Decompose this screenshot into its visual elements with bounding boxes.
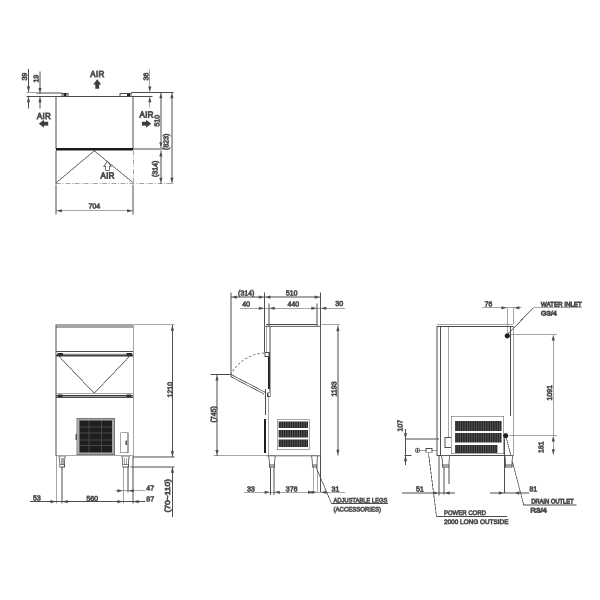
svg-text:(70~110): (70~110) bbox=[165, 479, 172, 513]
svg-text:1193: 1193 bbox=[332, 381, 339, 396]
svg-text:AIR: AIR bbox=[101, 172, 115, 181]
svg-text:(314): (314) bbox=[238, 290, 254, 297]
svg-text:33: 33 bbox=[247, 486, 255, 493]
svg-text:510: 510 bbox=[286, 290, 298, 297]
svg-text:31: 31 bbox=[332, 487, 340, 494]
svg-text:36: 36 bbox=[143, 73, 150, 81]
svg-text:(314): (314) bbox=[152, 161, 159, 177]
svg-text:AIR: AIR bbox=[37, 112, 51, 121]
svg-text:2000 LONG OUTSIDE: 2000 LONG OUTSIDE bbox=[444, 519, 509, 526]
svg-text:30: 30 bbox=[335, 301, 343, 308]
svg-text:510: 510 bbox=[155, 115, 162, 127]
svg-text:1210: 1210 bbox=[167, 382, 174, 398]
svg-text:81: 81 bbox=[529, 486, 537, 493]
svg-text:87: 87 bbox=[146, 497, 154, 504]
svg-text:51: 51 bbox=[416, 487, 424, 494]
svg-text:47: 47 bbox=[146, 486, 154, 493]
svg-text:53: 53 bbox=[33, 495, 41, 502]
svg-text:181: 181 bbox=[539, 441, 546, 453]
svg-text:POWER CORD: POWER CORD bbox=[444, 510, 486, 517]
svg-text:440: 440 bbox=[288, 301, 300, 308]
svg-text:AIR: AIR bbox=[90, 70, 104, 79]
svg-text:(ACCESSORIES): (ACCESSORIES) bbox=[334, 507, 382, 514]
svg-text:376: 376 bbox=[286, 486, 298, 493]
svg-text:WATER INLET: WATER INLET bbox=[541, 301, 582, 308]
svg-text:76: 76 bbox=[485, 301, 493, 308]
svg-text:(823): (823) bbox=[163, 134, 170, 150]
svg-text:R3/4: R3/4 bbox=[530, 508, 547, 515]
svg-text:704: 704 bbox=[89, 204, 101, 211]
svg-text:DRAIN OUTLET: DRAIN OUTLET bbox=[531, 499, 574, 506]
svg-text:G3/4: G3/4 bbox=[541, 310, 557, 317]
svg-text:19: 19 bbox=[34, 75, 41, 83]
svg-text:ADJUSTABLE LEGS: ADJUSTABLE LEGS bbox=[334, 497, 388, 504]
svg-text:AIR: AIR bbox=[140, 111, 154, 120]
svg-text:40: 40 bbox=[242, 302, 250, 309]
svg-text:1091: 1091 bbox=[547, 385, 554, 401]
svg-text:560: 560 bbox=[86, 496, 98, 503]
svg-text:(745): (745) bbox=[211, 406, 218, 422]
svg-text:39: 39 bbox=[22, 73, 29, 81]
svg-text:107: 107 bbox=[397, 420, 404, 432]
